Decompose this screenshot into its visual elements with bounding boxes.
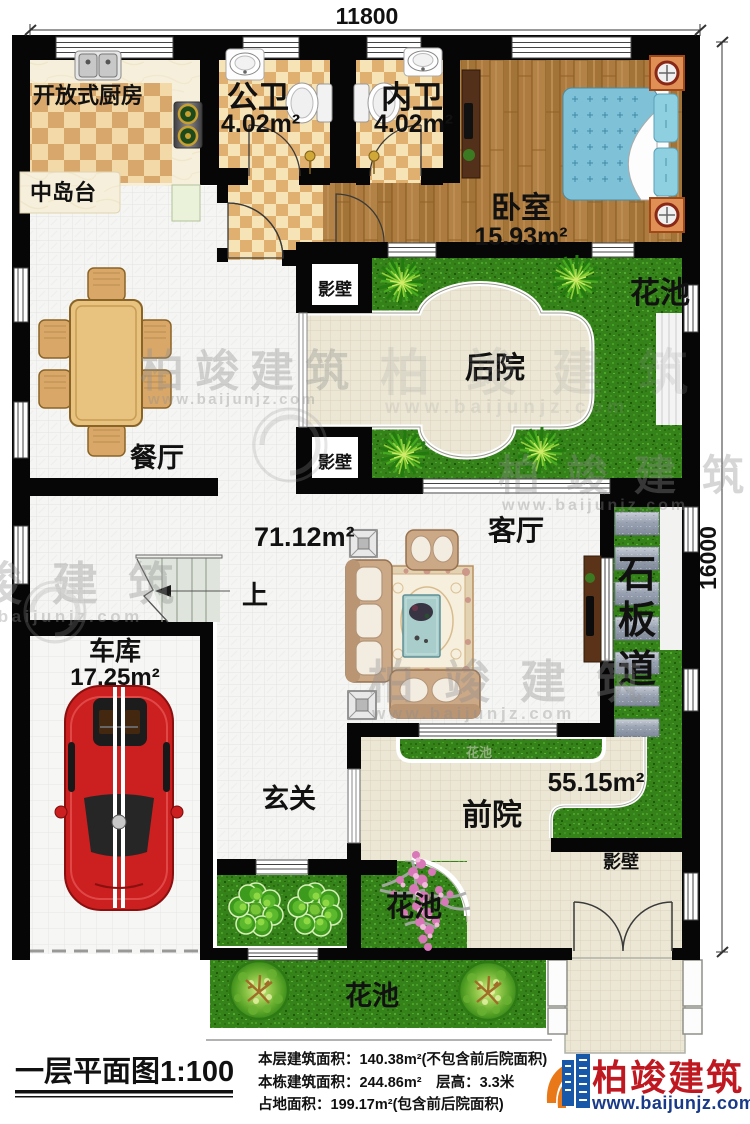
- svg-text:17.25m²: 17.25m²: [70, 664, 159, 691]
- svg-text:www.baijunjz.com: www.baijunjz.com: [147, 391, 317, 408]
- svg-text:www.baijunjz.com: www.baijunjz.com: [501, 497, 688, 514]
- svg-text:影壁: 影壁: [318, 279, 352, 299]
- svg-text:柏竣建筑: 柏竣建筑: [140, 347, 360, 396]
- svg-text:柏竣建筑: 柏竣建筑: [368, 656, 672, 708]
- svg-text:花池: 花池: [466, 745, 492, 760]
- svg-text:餐厅: 餐厅: [130, 443, 184, 473]
- svg-text:15.93m²: 15.93m²: [474, 223, 567, 251]
- svg-text:占地面积：199.17m²(包含前后院面积): 占地面积：199.17m²(包含前后院面积): [258, 1095, 504, 1113]
- svg-text:www.baijunjz.com: www.baijunjz.com: [384, 397, 629, 418]
- svg-text:www.baijunjz.com: www.baijunjz.com: [0, 607, 143, 626]
- svg-text:中岛台: 中岛台: [30, 180, 96, 205]
- svg-text:4.02m²: 4.02m²: [221, 110, 300, 138]
- svg-text:11800: 11800: [336, 3, 399, 29]
- svg-text:石: 石: [618, 554, 656, 596]
- svg-text:本层建筑面积：140.38m²(不包含前后院面积): 本层建筑面积：140.38m²(不包含前后院面积): [258, 1050, 547, 1068]
- svg-text:前院: 前院: [462, 798, 522, 832]
- svg-text:71.12m²: 71.12m²: [254, 522, 355, 552]
- svg-text:柏竣建筑: 柏竣建筑: [498, 452, 750, 499]
- svg-text:花池: 花池: [345, 981, 399, 1011]
- svg-text:花池: 花池: [630, 277, 690, 310]
- svg-text:影壁: 影壁: [603, 851, 639, 872]
- svg-text:玄关: 玄关: [262, 783, 316, 814]
- svg-text:www.baijunjz.com: www.baijunjz.com: [591, 1093, 750, 1113]
- svg-text:4.02m²: 4.02m²: [374, 110, 453, 138]
- svg-text:开放式厨房: 开放式厨房: [33, 83, 143, 108]
- svg-text:本栋建筑面积：244.86m² 层高：3.3米: 本栋建筑面积：244.86m² 层高：3.3米: [258, 1073, 515, 1091]
- svg-text:车库: 车库: [89, 636, 141, 666]
- svg-text:柏竣建筑: 柏竣建筑: [0, 558, 204, 610]
- svg-text:55.15m²: 55.15m²: [548, 767, 645, 797]
- svg-text:柏竣建筑: 柏竣建筑: [592, 1057, 744, 1098]
- svg-text:16000: 16000: [695, 526, 721, 590]
- svg-text:客厅: 客厅: [488, 514, 544, 546]
- svg-text:花池: 花池: [386, 891, 442, 922]
- svg-text:上: 上: [242, 580, 268, 610]
- svg-text:板: 板: [618, 600, 656, 642]
- svg-text:卧室: 卧室: [491, 191, 551, 225]
- svg-text:www.baijunjz.com: www.baijunjz.com: [371, 704, 575, 723]
- svg-text:柏竣建筑: 柏竣建筑: [380, 345, 724, 401]
- svg-text:一层平面图1:100: 一层平面图1:100: [15, 1056, 234, 1088]
